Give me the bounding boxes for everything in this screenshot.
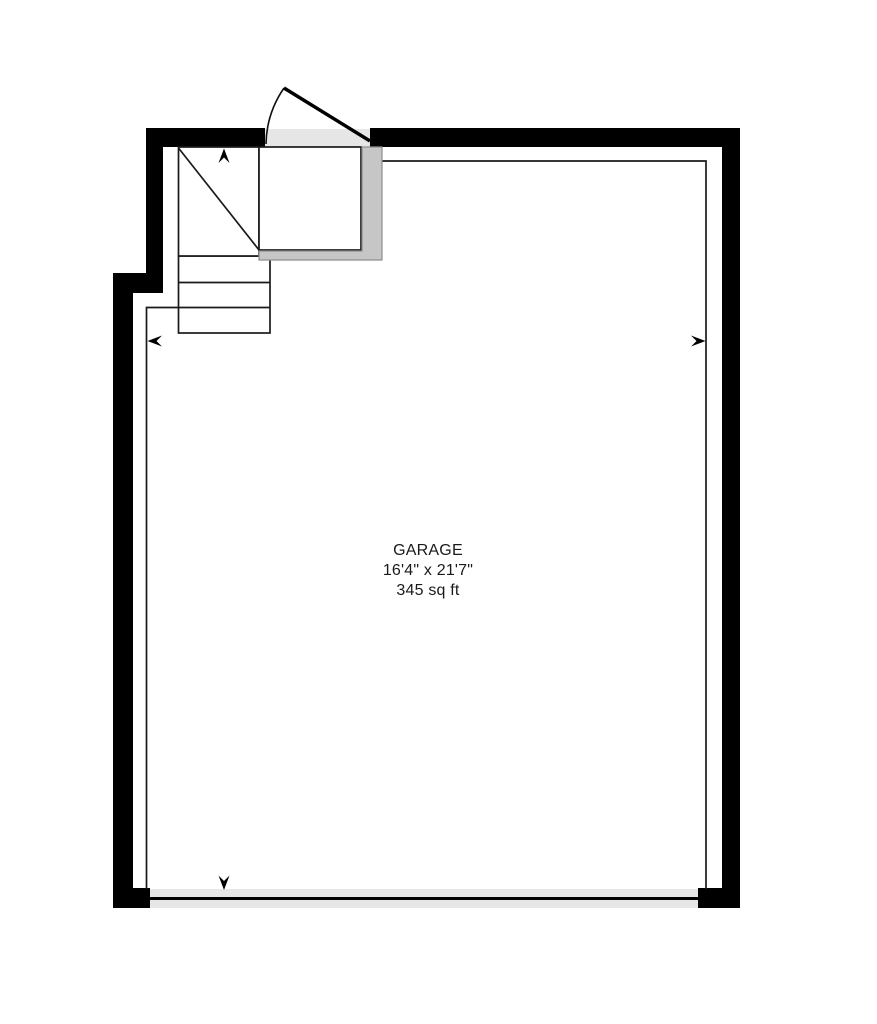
stair-treads-box xyxy=(179,256,271,333)
right-arrow-icon xyxy=(691,336,706,347)
down-arrow-icon xyxy=(219,876,230,891)
stairs xyxy=(179,147,271,333)
stair-landing xyxy=(259,147,382,260)
floor-plan-svg xyxy=(0,0,877,1024)
left-wall-upper xyxy=(146,128,163,293)
room-label: GARAGE 16'4" x 21'7" 345 sq ft xyxy=(278,541,578,601)
floor-plan: GARAGE 16'4" x 21'7" 345 sq ft xyxy=(0,0,877,1024)
left-arrow-icon xyxy=(148,336,163,347)
landing-platform xyxy=(259,147,361,250)
garage-door xyxy=(150,889,698,908)
bottom-right-wall-stub xyxy=(698,888,740,908)
bottom-left-wall-stub xyxy=(113,888,150,908)
room-name: GARAGE xyxy=(278,541,578,561)
top-wall-left-segment xyxy=(146,128,265,147)
right-wall xyxy=(722,128,740,908)
interior-boundary-right xyxy=(382,161,706,889)
interior-boundary-left xyxy=(147,308,179,890)
room-dimensions: 16'4" x 21'7" xyxy=(278,561,578,581)
left-wall-lower xyxy=(113,273,133,908)
top-wall-right-segment xyxy=(370,128,740,147)
room-area: 345 sq ft xyxy=(278,581,578,601)
